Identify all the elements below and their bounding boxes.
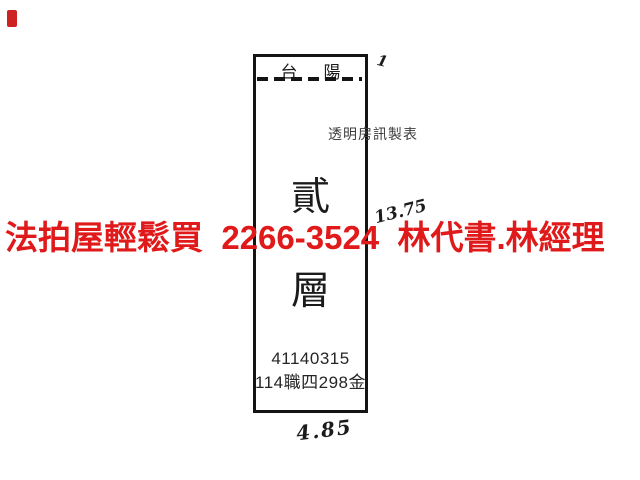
- red-corner-mark: [7, 10, 17, 27]
- floor-label-char-top: 貳: [253, 178, 368, 217]
- handwritten-width-dimension: 4.85: [295, 415, 354, 446]
- serial-number: 41140315: [253, 349, 368, 369]
- red-watermark-text: 法拍屋輕鬆買 2266-3524 林代書.林經理: [5, 219, 605, 256]
- publisher-label: 透明房訊製表: [328, 124, 418, 144]
- handwritten-corner-tick: 1: [375, 51, 389, 71]
- case-reference: 114職四298金: [253, 368, 368, 393]
- floor-label-char-bottom: 層: [253, 272, 368, 311]
- scanned-survey-sketch-page: 台 陽 透明房訊製表 貳 層 41140315 114職四298金 13.75 …: [0, 0, 640, 480]
- balcony-dashed-divider: [257, 77, 362, 81]
